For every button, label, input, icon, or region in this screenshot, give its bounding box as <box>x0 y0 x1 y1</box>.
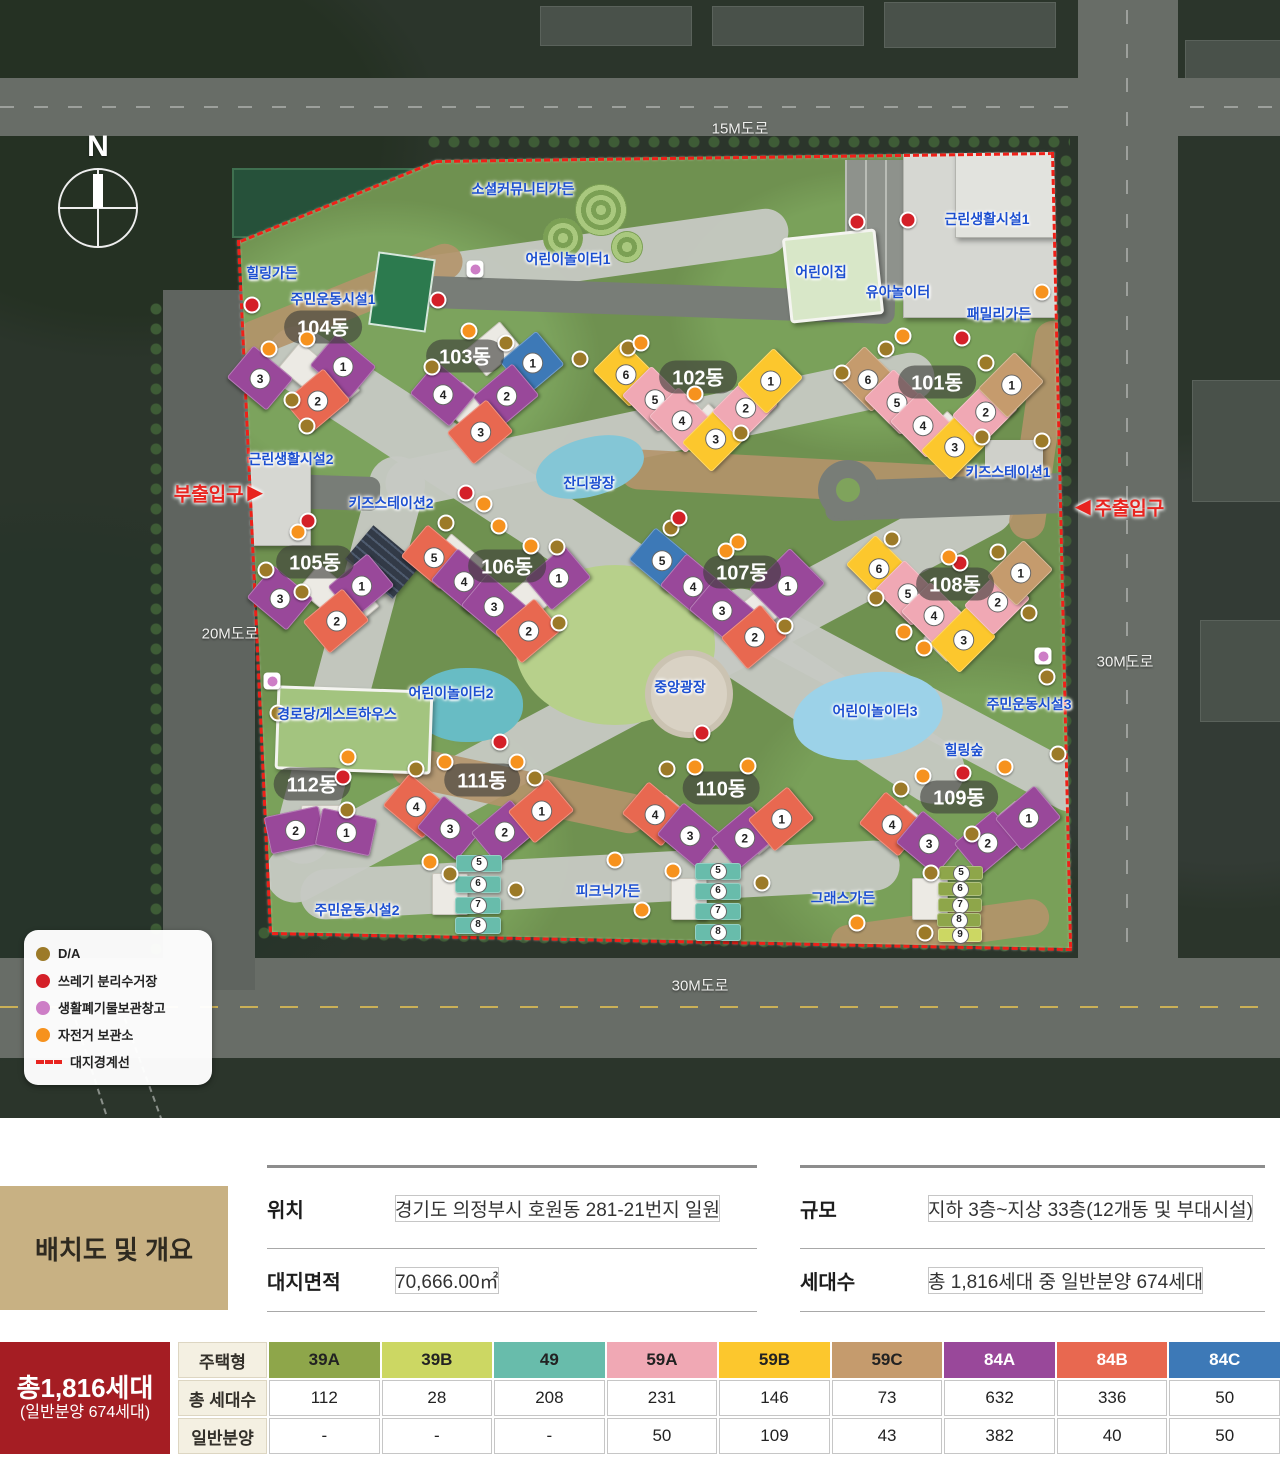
unit-number-badge: 4 <box>433 384 454 405</box>
map-dot-da <box>284 392 301 409</box>
trash-dot-icon <box>36 974 50 988</box>
building-unit: 8 <box>937 913 981 927</box>
site-plan-map: 654321101동654321102동1234103동123104동12310… <box>0 0 1280 1118</box>
unit-type-total: 336 <box>1057 1380 1168 1416</box>
unit-type-total: 146 <box>719 1380 830 1416</box>
entrance-arrow-icon: ▶ <box>248 482 263 505</box>
building-label: 104동 <box>284 311 362 344</box>
unit-number-badge: 2 <box>496 386 517 407</box>
unit-number-badge: 2 <box>975 402 996 423</box>
row-label: 위치 <box>267 1194 395 1223</box>
road-label: 30M도로 <box>1097 651 1154 672</box>
map-dot-bike <box>687 386 704 403</box>
row-value: 경기도 의정부시 호원동 281-21번지 일원 <box>395 1195 720 1222</box>
unit-number-badge: 5 <box>471 855 488 872</box>
waste-dot-icon <box>470 264 480 274</box>
unit-number-badge: 2 <box>285 820 306 841</box>
compass-dial <box>58 168 138 248</box>
building-label: 107동 <box>703 556 781 589</box>
building-label: 108동 <box>916 568 994 601</box>
map-dot-bike <box>491 518 508 535</box>
legend-item: 쓰레기 분리수거장 <box>36 967 200 994</box>
unit-number-badge: 1 <box>1001 375 1022 396</box>
unit-type-general-sale: 50 <box>607 1418 718 1454</box>
building-label: 106동 <box>468 550 546 583</box>
row-label: 규모 <box>800 1194 928 1223</box>
map-dot-da <box>754 875 771 892</box>
unit-number-badge: 3 <box>484 596 505 617</box>
map-dot-da <box>294 584 311 601</box>
map-dot-da <box>508 882 525 899</box>
map-dot-trash <box>244 297 261 314</box>
unit-type-total: 112 <box>269 1380 380 1416</box>
compass-needle-icon <box>93 174 103 208</box>
unit-number-badge: 1 <box>1010 563 1031 584</box>
unit-number-badge: 7 <box>470 897 487 914</box>
building-unit: 7 <box>938 898 982 912</box>
building-unit: 7 <box>455 897 501 914</box>
map-dot-trash <box>955 765 972 782</box>
map-dot-bike <box>896 624 913 641</box>
building-unit: 6 <box>455 876 501 893</box>
building-unit: 5 <box>695 863 741 880</box>
unit-type-header: 84B <box>1057 1342 1168 1378</box>
unit-number-badge: 1 <box>760 371 781 392</box>
unit-number-badge: 3 <box>440 818 461 839</box>
facility-label: 피크닉가든 <box>576 881 640 901</box>
total-households: 총1,816세대 <box>17 1374 154 1404</box>
waste-dot-icon <box>36 1001 50 1015</box>
legend-label: 생활폐기물보관창고 <box>58 998 166 1017</box>
unit-number-badge: 5 <box>710 863 727 880</box>
unit-number-badge: 1 <box>522 353 543 374</box>
unit-type-header: 59C <box>832 1342 943 1378</box>
map-dot-da <box>974 429 991 446</box>
unit-number-badge: 4 <box>672 410 693 431</box>
unit-number-badge: 1 <box>771 809 792 830</box>
road-label: 20M도로 <box>202 623 259 644</box>
facility-label: 키즈스테이션1 <box>965 462 1050 482</box>
legend-items: D/A쓰레기 분리수거장생활폐기물보관창고자전거 보관소 <box>36 940 200 1048</box>
overview-section: 배치도 및 개요 위치 경기도 의정부시 호원동 281-21번지 일원 대지면… <box>0 1118 1280 1457</box>
map-dot-da <box>551 615 568 632</box>
row-value: 70,666.00㎡ <box>395 1267 499 1294</box>
unit-type-total: 28 <box>382 1380 493 1416</box>
legend-label: 자전거 보관소 <box>58 1025 133 1044</box>
map-dot-da <box>527 770 544 787</box>
unit-number-badge: 1 <box>548 568 569 589</box>
map-dot-da <box>1039 669 1056 686</box>
map-dot-bike <box>1034 284 1051 301</box>
unit-number-badge: 6 <box>470 876 487 893</box>
unit-number-badge: 5 <box>424 547 445 568</box>
map-dot-da <box>884 531 901 548</box>
map-dot-bike <box>740 758 757 775</box>
map-dot-trash <box>458 485 475 502</box>
unit-type-header: 59A <box>607 1342 718 1378</box>
building-unit: 5 <box>939 866 983 880</box>
table-row-header: 총 세대수 <box>178 1380 267 1416</box>
facility-label: 근린생활시설2 <box>248 449 333 469</box>
map-dot-da <box>978 355 995 372</box>
unit-number-badge: 8 <box>710 924 727 941</box>
waste-dot-icon <box>1038 651 1048 661</box>
unit-number-badge: 9 <box>952 927 969 944</box>
overview-row-location: 위치 경기도 의정부시 호원동 281-21번지 일원 <box>267 1165 757 1249</box>
compass-north-label: N <box>58 130 138 164</box>
facility-label: 소셜커뮤니티가든 <box>471 179 574 199</box>
unit-number-badge: 3 <box>712 600 733 621</box>
map-dot-da <box>424 359 441 376</box>
unit-number-badge: 3 <box>944 437 965 458</box>
unit-number-badge: 3 <box>270 588 291 609</box>
unit-number-badge: 6 <box>710 883 727 900</box>
map-dot-trash <box>492 734 509 751</box>
map-dot-bike <box>916 640 933 657</box>
map-dot-trash <box>335 769 352 786</box>
overview-right-column: 규모 지하 3층~지상 33층(12개동 및 부대시설) 세대수 총 1,816… <box>800 1165 1265 1312</box>
unit-number-badge: 3 <box>250 368 271 389</box>
facility-label: 어린이집 <box>795 262 847 282</box>
road-label: 15M도로 <box>712 118 769 139</box>
unit-number-badge: 4 <box>924 605 945 626</box>
map-dot-da <box>299 418 316 435</box>
unit-type-general-sale: 43 <box>832 1418 943 1454</box>
table-row-header: 일반분양 <box>178 1418 267 1454</box>
table-row-header: 주택형 <box>178 1342 267 1378</box>
unit-number-badge: 4 <box>406 796 427 817</box>
legend-item: 자전거 보관소 <box>36 1021 200 1048</box>
map-dot-bike <box>633 335 650 352</box>
map-dot-da <box>659 761 676 778</box>
unit-type-total: 50 <box>1169 1380 1280 1416</box>
building-unit: 8 <box>695 924 741 941</box>
entrance-arrow-icon: ◀ <box>1076 496 1091 519</box>
unit-number-badge: 5 <box>652 550 673 571</box>
legend-item-boundary: 대지경계선 <box>36 1048 200 1075</box>
unit-type-general-sale: - <box>494 1418 605 1454</box>
legend-item: 생활폐기물보관창고 <box>36 994 200 1021</box>
map-dot-da <box>964 826 981 843</box>
unit-type-header: 84C <box>1169 1342 1280 1378</box>
map-dot-waste <box>467 261 484 278</box>
unit-type-header: 84A <box>944 1342 1055 1378</box>
map-dot-bike <box>895 328 912 345</box>
unit-type-general-sale: - <box>382 1418 493 1454</box>
unit-number-badge: 8 <box>470 917 487 934</box>
unit-number-badge: 2 <box>734 828 755 849</box>
entrance-text: 부출입구 <box>174 480 244 507</box>
map-dot-bike <box>941 549 958 566</box>
building-label: 101동 <box>898 366 976 399</box>
unit-number-badge: 4 <box>645 804 666 825</box>
facility-label: 힐링가든 <box>246 263 298 283</box>
facility-label: 힐링숲 <box>945 740 984 760</box>
map-dot-bike <box>607 852 624 869</box>
map-dot-trash <box>954 330 971 347</box>
unit-number-badge: 6 <box>869 558 890 579</box>
map-dot-bike <box>665 863 682 880</box>
bike-dot-icon <box>36 1028 50 1042</box>
facility-label: 어린이놀이터3 <box>832 701 917 721</box>
legend-item: D/A <box>36 940 200 967</box>
map-dot-da <box>549 539 566 556</box>
unit-number-badge: 1 <box>1018 808 1039 829</box>
map-dot-bike <box>437 754 454 771</box>
unit-number-badge: 3 <box>919 833 940 854</box>
facility-label: 그래스가든 <box>811 888 875 908</box>
map-dot-bike <box>849 915 866 932</box>
facility-label: 주민운동시설2 <box>314 900 399 920</box>
unit-number-badge: 2 <box>744 627 765 648</box>
unit-type-total: 632 <box>944 1380 1055 1416</box>
map-dot-da <box>777 618 794 635</box>
map-dot-da <box>1034 433 1051 450</box>
unit-number-badge: 1 <box>351 576 372 597</box>
map-dot-bike <box>915 768 932 785</box>
overview-row-scale: 규모 지하 3층~지상 33층(12개동 및 부대시설) <box>800 1165 1265 1249</box>
unit-type-total: 231 <box>607 1380 718 1416</box>
facility-label: 어린이놀이터1 <box>525 249 610 269</box>
map-dot-da <box>868 590 885 607</box>
map-dot-da <box>923 865 940 882</box>
unit-number-badge: 1 <box>531 801 552 822</box>
unit-type-header: 39A <box>269 1342 380 1378</box>
facility-label: 주민운동시설1 <box>290 289 375 309</box>
map-dot-bike <box>461 323 478 340</box>
map-dot-trash <box>694 725 711 742</box>
map-dot-da <box>438 515 455 532</box>
map-dot-da <box>408 761 425 778</box>
facility-label: 잔디광장 <box>563 473 615 493</box>
map-dot-bike <box>509 754 526 771</box>
map-dot-da <box>498 335 515 352</box>
map-dot-trash <box>430 292 447 309</box>
map-legend: D/A쓰레기 분리수거장생활폐기물보관창고자전거 보관소 대지경계선 <box>24 930 212 1085</box>
map-dot-da <box>990 544 1007 561</box>
unit-type-header: 49 <box>494 1342 605 1378</box>
map-dot-bike <box>523 538 540 555</box>
unit-type-general-sale: 40 <box>1057 1418 1168 1454</box>
unit-number-badge: 7 <box>710 903 727 920</box>
unit-number-badge: 2 <box>326 611 347 632</box>
map-dot-bike <box>422 854 439 871</box>
map-dot-bike <box>340 749 357 766</box>
unit-number-badge: 5 <box>953 865 970 882</box>
map-dot-waste <box>264 673 281 690</box>
building-unit: 9 <box>938 928 982 942</box>
map-dot-da <box>893 781 910 798</box>
map-dot-da <box>878 341 895 358</box>
map-dot-bike <box>261 341 278 358</box>
map-dot-trash <box>900 212 917 229</box>
map-dot-waste <box>1035 648 1052 665</box>
unit-type-general-sale: 382 <box>944 1418 1055 1454</box>
unit-type-table: 주택형39A39B4959A59B59C84A84B84C총 세대수112282… <box>178 1342 1280 1454</box>
unit-number-badge: 1 <box>336 822 357 843</box>
map-dot-bike <box>299 331 316 348</box>
legend-label: 쓰레기 분리수거장 <box>58 971 157 990</box>
facility-label: 키즈스테이션2 <box>348 493 433 513</box>
facility-label: 경로당/게스트하우스 <box>277 704 397 724</box>
map-dot-da <box>1021 605 1038 622</box>
unit-type-header: 59B <box>719 1342 830 1378</box>
unit-type-header: 39B <box>382 1342 493 1378</box>
map-dot-da <box>442 866 459 883</box>
building-unit: 6 <box>695 883 741 900</box>
legend-label: D/A <box>58 946 80 961</box>
overview-row-site-area: 대지면적 70,666.00㎡ <box>267 1249 757 1312</box>
row-label: 대지면적 <box>267 1266 395 1295</box>
building-label: 105동 <box>276 546 354 579</box>
map-dot-bike <box>476 496 493 513</box>
map-dot-da <box>733 425 750 442</box>
unit-type-general-sale: - <box>269 1418 380 1454</box>
da-dot-icon <box>36 947 50 961</box>
building-unit: 5 <box>456 855 502 872</box>
legend-label: 대지경계선 <box>70 1052 130 1071</box>
unit-type-general-sale: 50 <box>1169 1418 1280 1454</box>
map-dot-trash <box>671 510 688 527</box>
unit-number-badge: 4 <box>882 814 903 835</box>
section-title: 배치도 및 개요 <box>0 1186 228 1310</box>
unit-number-badge: 2 <box>518 621 539 642</box>
facility-label: 중앙광장 <box>654 677 706 697</box>
map-dot-da <box>572 351 589 368</box>
row-value: 총 1,816세대 중 일반분양 674세대 <box>928 1267 1203 1294</box>
map-dot-da <box>917 925 934 942</box>
unit-number-badge: 2 <box>494 822 515 843</box>
unit-number-badge: 2 <box>307 391 328 412</box>
unit-number-badge: 1 <box>333 356 354 377</box>
compass: N <box>58 130 138 248</box>
facility-label: 주민운동시설3 <box>986 694 1071 714</box>
row-value: 지하 3층~지상 33층(12개동 및 부대시설) <box>928 1195 1253 1222</box>
building-unit: 6 <box>938 882 982 896</box>
facility-label: 패밀리가든 <box>967 304 1031 324</box>
unit-type-total: 208 <box>494 1380 605 1416</box>
map-dot-bike <box>718 543 735 560</box>
general-sale-households: (일반분양 674세대) <box>20 1404 150 1422</box>
unit-type-general-sale: 109 <box>719 1418 830 1454</box>
road-label: 30M도로 <box>672 975 729 996</box>
unit-number-badge: 6 <box>616 364 637 385</box>
waste-dot-icon <box>267 676 277 686</box>
map-dot-bike <box>634 902 651 919</box>
map-dot-da <box>834 365 851 382</box>
entrance-text: 주출입구 <box>1094 494 1164 521</box>
overview-left-column: 위치 경기도 의정부시 호원동 281-21번지 일원 대지면적 70,666.… <box>267 1165 757 1312</box>
row-label: 세대수 <box>800 1266 928 1295</box>
unit-number-badge: 3 <box>705 429 726 450</box>
overview-row-households: 세대수 총 1,816세대 중 일반분양 674세대 <box>800 1249 1265 1312</box>
facility-label: 근린생활시설1 <box>944 209 1029 229</box>
facility-label: 어린이놀이터2 <box>408 683 493 703</box>
map-dot-bike <box>687 759 704 776</box>
building-label: 109동 <box>920 781 998 814</box>
map-dot-trash <box>849 214 866 231</box>
entrance-label: 부출입구▶ <box>174 480 263 507</box>
boundary-line-icon <box>36 1060 62 1064</box>
map-dot-bike <box>997 759 1014 776</box>
unit-number-badge: 3 <box>470 422 491 443</box>
map-dot-da <box>339 802 356 819</box>
unit-number-badge: 4 <box>913 415 934 436</box>
total-households-box: 총1,816세대 (일반분양 674세대) <box>0 1342 170 1454</box>
entrance-label: ◀주출입구 <box>1076 494 1165 521</box>
building-label: 111동 <box>444 764 520 797</box>
map-dot-da <box>258 562 275 579</box>
unit-number-badge: 3 <box>953 630 974 651</box>
building-unit: 7 <box>695 903 741 920</box>
unit-number-badge: 6 <box>952 881 969 898</box>
map-dot-da <box>1050 746 1067 763</box>
map-dot-bike <box>290 524 307 541</box>
building-unit: 8 <box>455 917 501 934</box>
unit-type-total: 73 <box>832 1380 943 1416</box>
facility-label: 유아놀이터 <box>866 282 930 302</box>
building-label: 110동 <box>683 772 760 805</box>
unit-number-badge: 3 <box>680 825 701 846</box>
